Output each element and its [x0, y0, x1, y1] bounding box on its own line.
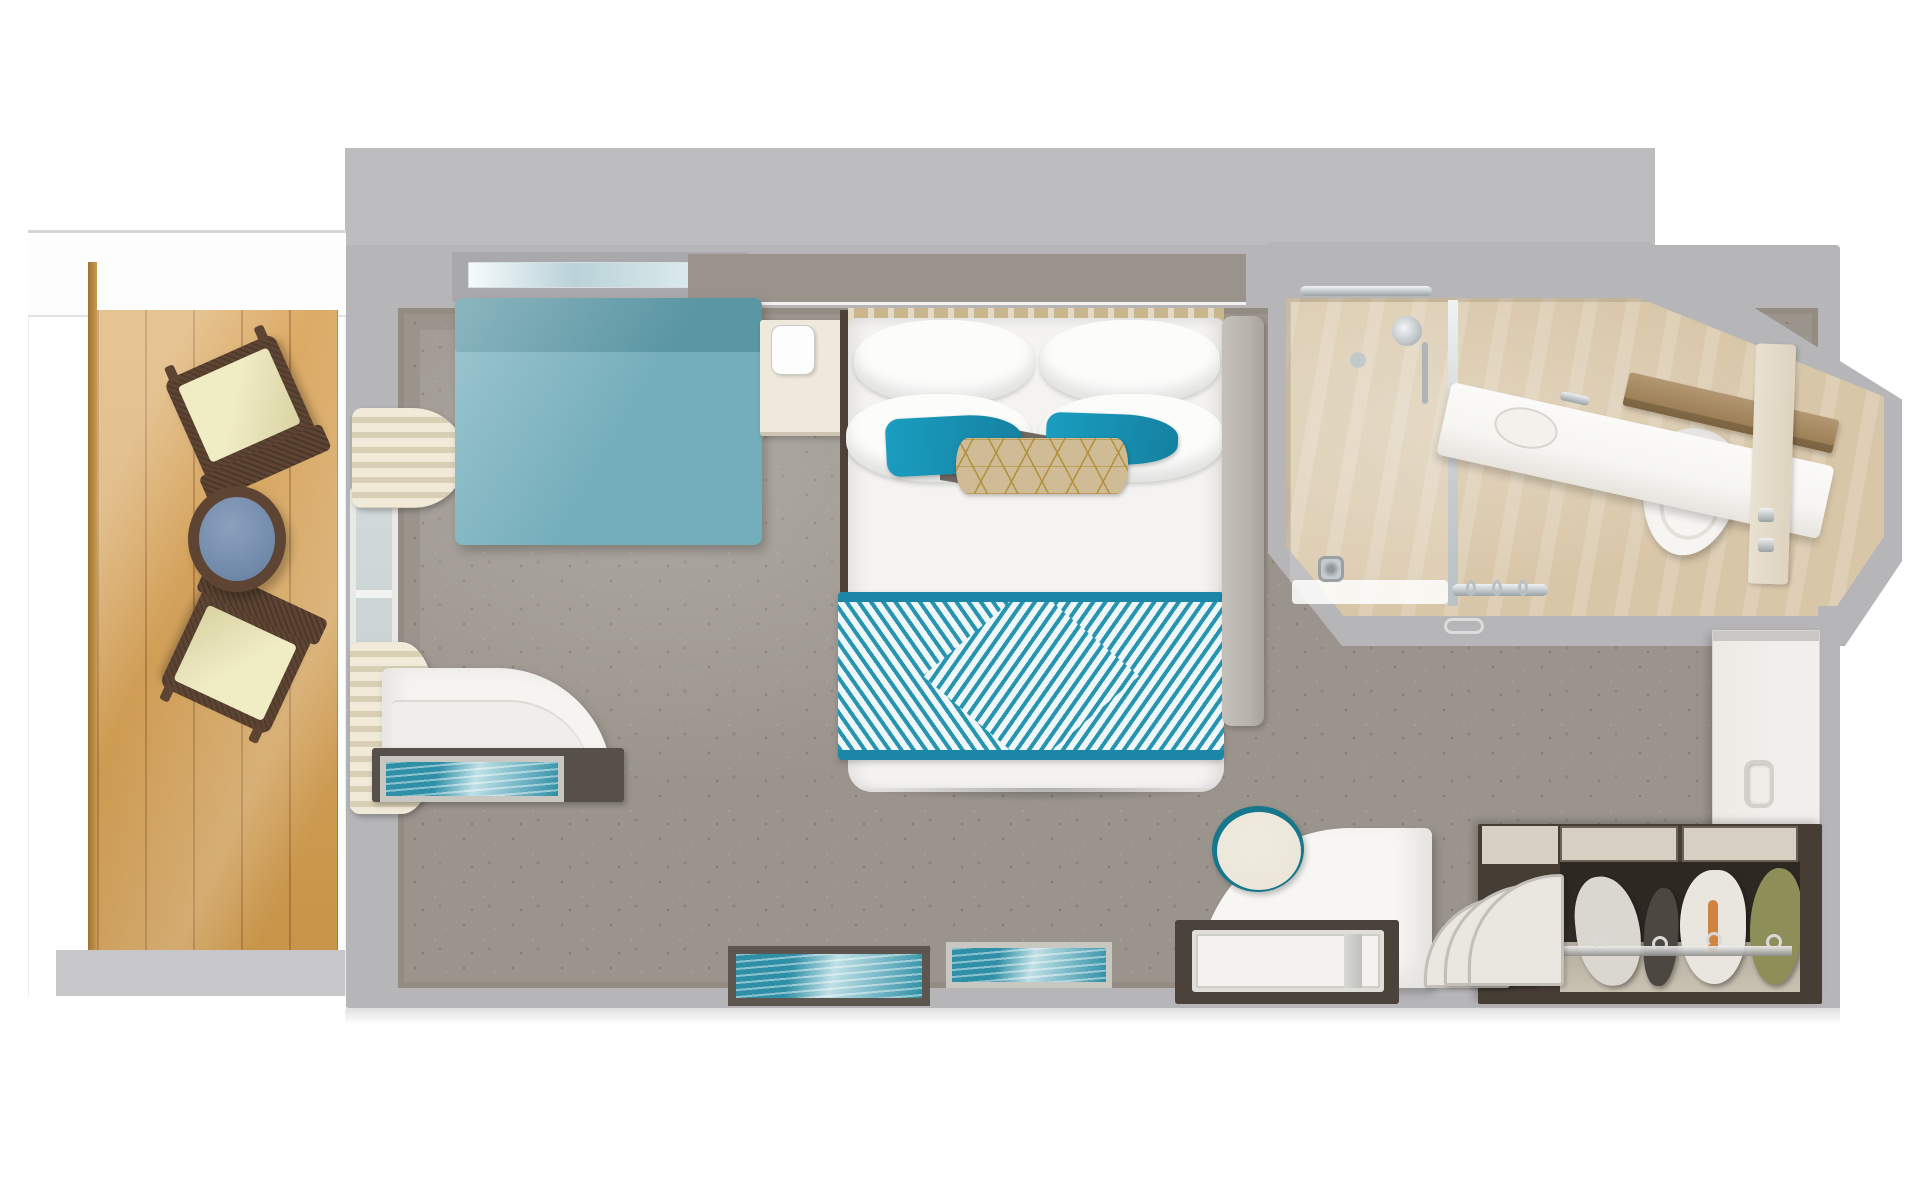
door-hinge	[1758, 538, 1774, 552]
shower-slide-bar	[1300, 286, 1432, 296]
white-pillow	[1040, 320, 1220, 404]
hanger-hook	[1766, 934, 1782, 950]
hanger-hook	[1706, 932, 1722, 948]
gold-lumbar-pillow	[956, 438, 1128, 494]
sofa-highlight	[455, 298, 762, 545]
closet-interior	[1560, 862, 1800, 992]
shower-drain	[1318, 556, 1344, 582]
closet-top-panel	[1560, 826, 1678, 862]
closet-top-panel	[1682, 826, 1798, 862]
hanger-hook	[1652, 936, 1668, 952]
shower-hose	[1422, 342, 1428, 404]
shower-knob	[1350, 352, 1366, 368]
balcony-floor-strip	[56, 950, 345, 998]
balcony-railing	[88, 262, 97, 958]
shower-head	[1392, 316, 1422, 346]
hanger-hook	[1594, 934, 1610, 950]
closet-hanging-rail	[1560, 946, 1792, 956]
table-lamp	[772, 326, 814, 374]
bed-padded-side-rail	[1222, 316, 1264, 726]
floorplan-drop-shadow	[345, 1008, 1840, 1024]
bed-runner-teal-pattern	[838, 592, 1224, 760]
bed-shadow	[856, 788, 1232, 802]
shower-tray-edge	[1292, 580, 1448, 604]
wardrobe-handle	[1744, 760, 1774, 808]
wall-backdrop	[345, 148, 1655, 250]
stool-seat	[1217, 812, 1301, 890]
desk-tray-metal-strip	[1344, 934, 1362, 988]
balcony-top-wall	[28, 230, 346, 317]
framed-artwork	[380, 756, 564, 802]
framed-artwork	[728, 946, 930, 1006]
stateroom-floorplan	[0, 0, 1920, 1200]
towel-ring	[1492, 580, 1502, 596]
framed-artwork	[946, 942, 1112, 988]
closet-top-panel	[1482, 826, 1558, 864]
door-hinge	[1758, 508, 1774, 522]
towel-ring	[1466, 580, 1476, 596]
white-pillow	[854, 320, 1034, 404]
headboard-wall-niche	[688, 254, 1246, 305]
balcony-bottom-wall	[28, 996, 346, 1010]
bathroom-door-handle	[1444, 618, 1484, 634]
balcony-side-table	[188, 486, 286, 592]
hanging-garment-white	[1680, 870, 1746, 984]
towel-ring	[1518, 580, 1528, 596]
curtain	[352, 408, 464, 508]
